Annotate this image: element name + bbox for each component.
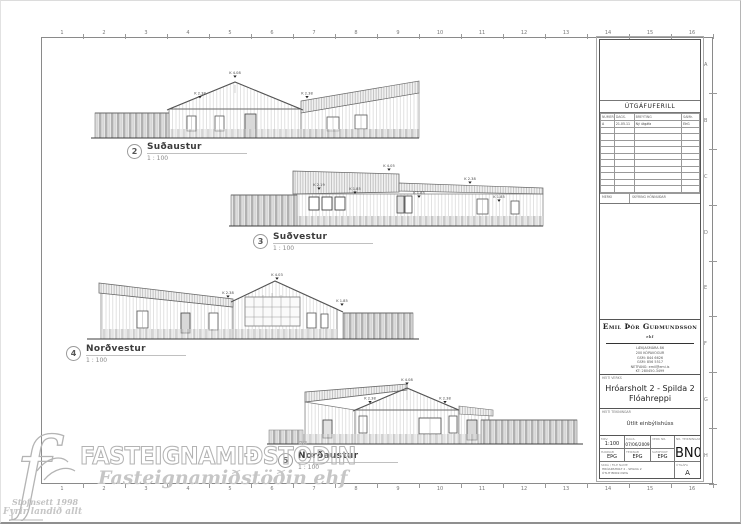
elevation-4-label: 4 Norðvestur 1 : 100 <box>66 344 186 364</box>
revision-footer-right: SKÝRING HÖNNUÐAR <box>630 194 668 203</box>
ruler-mark: 11 <box>461 30 503 36</box>
ruler-mark: 7 <box>293 30 335 36</box>
label-underline <box>273 243 373 244</box>
approved-value: EÞG <box>651 454 674 460</box>
level-marker: K 1.85 <box>336 299 348 303</box>
drawn-value: EÞG <box>625 454 650 460</box>
scale-value: 1:100 <box>600 441 624 447</box>
ruler-mark: 7 <box>293 486 335 492</box>
elevation-scale: 1 : 100 <box>298 464 398 471</box>
elevation-scale: 1 : 100 <box>86 357 186 364</box>
elevation-name: Norðvestur <box>86 344 186 354</box>
ruler-mark: 12 <box>503 486 545 492</box>
level-marker: K 1.85 <box>349 187 361 191</box>
elevation-number-badge: 2 <box>127 144 142 159</box>
ruler-mark: 9 <box>377 486 419 492</box>
drawn-cell: TEIKNAÐEÞG <box>625 449 651 462</box>
level-marker: K 2.38 <box>222 291 234 295</box>
elevation-number-badge: 5 <box>278 453 293 468</box>
ruler-mark: 2 <box>83 30 125 36</box>
ruler-mark: 5 <box>209 486 251 492</box>
revision-header-cell: BREYTING <box>634 114 682 121</box>
project-section: HEITI VERKS Hróarsholt 2 - Spilda 2 Flóa… <box>600 374 700 408</box>
revision-table-body: A21.05.11Ný útgáfaEÞG <box>601 121 700 193</box>
approved-cell: SAMÞYKKTEÞG <box>651 449 675 462</box>
level-marker: K 4.03 <box>271 273 283 277</box>
revision-row <box>601 186 700 193</box>
drawing-sheet: 12345678910111213141516 1234567891011121… <box>0 0 741 524</box>
level-marker: K 2.38 <box>301 92 313 96</box>
title-block-top-space <box>600 40 700 101</box>
ruler-mark: A <box>702 37 713 93</box>
ruler-mark: B <box>702 93 713 149</box>
ruler-mark: D <box>702 205 713 261</box>
revision-table: NÚMERDAGS.BREYTINGSAMÞ. A21.05.11Ný útgá… <box>600 113 700 193</box>
level-marker: K 2.38 <box>194 92 206 96</box>
elevation-name: Suðaustur <box>147 142 247 152</box>
file-name-value: HRÓARSHOLT 2 - SPILDA 2ÚTLIT BN02.DWG <box>602 467 642 475</box>
ruler-mark: F <box>702 316 713 372</box>
ruler-mark: 9 <box>377 30 419 36</box>
ruler-mark: 12 <box>503 30 545 36</box>
ruler-mark: 8 <box>335 30 377 36</box>
ruler-mark: E <box>702 261 713 317</box>
company-address: LÆKJASMÁRA 86200 KÓPAVOGURGSM: 844 6626G… <box>600 346 700 374</box>
ruler-mark: 1 <box>41 30 83 36</box>
elevation-3-drawing: K 4.05 K 2.19 K 1.85 K 2.38 K 1.85 K 1.8… <box>227 161 545 233</box>
drawing-number-cell: NR. TEIKNINGARBN02 <box>675 436 700 462</box>
ruler-mark: 13 <box>545 486 587 492</box>
ruler-mark: 6 <box>251 486 293 492</box>
file-name-cell: SKRÁ / FILE NAME HRÓARSHOLT 2 - SPILDA 2… <box>600 462 675 478</box>
ruler-mark: 6 <box>251 30 293 36</box>
project-title: Hróarsholt 2 - Spilda 2 Flóahreppi <box>600 381 700 408</box>
title-block: ÚTGÁFUFERILL NÚMERDAGS.BREYTINGSAMÞ. A21… <box>599 39 701 479</box>
ruler-mark: 11 <box>461 486 503 492</box>
date-cell: DAGS.07/06/2009 <box>625 436 651 449</box>
elevation-name: Suðvestur <box>273 232 373 242</box>
elevation-number-badge: 3 <box>253 234 268 249</box>
ruler-bottom: 12345678910111213141516 <box>41 486 713 492</box>
designed-value: EÞG <box>600 454 624 460</box>
ruler-mark: 4 <box>167 486 209 492</box>
ruler-mark: 14 <box>587 486 629 492</box>
elevation-number-badge: 4 <box>66 346 81 361</box>
elevation-4-drawing: K 4.03 K 2.38 K 1.85 <box>85 271 421 351</box>
watermark-tagline: Fyrir landið allt <box>3 507 82 517</box>
revision-header-cell: DAGS. <box>614 114 634 121</box>
revision-footer-left: MERKI <box>600 194 630 203</box>
ruler-mark: 13 <box>545 30 587 36</box>
revision-header-cell: NÚMER <box>601 114 615 121</box>
ruler-mark: 8 <box>335 486 377 492</box>
level-marker: K 2.38 <box>464 177 476 181</box>
elevation-3-label: 3 Suðvestur 1 : 100 <box>253 232 373 252</box>
ruler-mark: 3 <box>125 30 167 36</box>
ruler-top: 12345678910111213141516 <box>41 30 713 36</box>
level-marker: K 2.38 <box>439 397 451 401</box>
level-marker: K 2.19 <box>313 183 325 187</box>
ruler-mark: C <box>702 149 713 205</box>
elevation-5-label: 5 Norðaustur 1 : 100 <box>278 451 398 471</box>
ruler-right: ABCDEFGH <box>702 37 713 484</box>
label-underline <box>147 153 247 154</box>
ruler-mark: 10 <box>419 30 461 36</box>
elevation-scale: 1 : 100 <box>273 245 373 252</box>
ruler-mark: 10 <box>419 486 461 492</box>
notes-area <box>600 204 700 320</box>
ruler-mark: 2 <box>83 486 125 492</box>
logo-bracket <box>12 509 43 520</box>
scale-cell: MKV.1:100 <box>600 436 625 449</box>
glazing-grid <box>245 293 300 326</box>
ruler-mark: 16 <box>671 30 713 36</box>
company-rule <box>606 343 694 344</box>
elevation-name: Norðaustur <box>298 451 398 461</box>
drawing-title-section: HEITI TEIKNINGAR Útlit einbýlishúss <box>600 408 700 435</box>
ruler-mark: 14 <box>587 30 629 36</box>
elevation-2-drawing: K 4.08 K 2.38 K 2.38 <box>87 67 423 145</box>
label-underline <box>86 355 186 356</box>
elevation-2-label: 2 Suðaustur 1 : 100 <box>127 142 247 162</box>
drawing-number-value: BN02 <box>675 446 700 461</box>
drawing-title: Útlit einbýlishúss <box>600 415 700 435</box>
door <box>397 196 404 213</box>
ruler-mark: 15 <box>629 30 671 36</box>
level-marker: K 4.05 <box>383 164 395 168</box>
company-suffix: ehf <box>646 335 653 339</box>
revision-title: ÚTGÁFUFERILL <box>600 101 700 113</box>
info-grid: MKV.1:100 DAGS.07/06/2009 VERK NR. NR. T… <box>600 435 700 478</box>
level-marker: K 2.38 <box>364 397 376 401</box>
revision-table-head-row: NÚMERDAGS.BREYTINGSAMÞ. <box>601 114 700 121</box>
ruler-mark: 4 <box>167 30 209 36</box>
ruler-mark: 15 <box>629 486 671 492</box>
level-marker: K 4.08 <box>229 71 241 75</box>
job-number-cell: VERK NR. <box>651 436 675 449</box>
company-name: Emil Þór Guðmundsson ehf <box>600 322 700 342</box>
watermark-founded: Stofnsett 1998 <box>12 497 78 507</box>
level-marker: K 1.85 <box>413 191 425 195</box>
ruler-mark: 1 <box>41 486 83 492</box>
level-marker: K 4.08 <box>401 378 413 382</box>
list-line: ÚTLIT BN02.DWG <box>602 471 642 475</box>
revision-header-cell: SAMÞ. <box>682 114 700 121</box>
ruler-mark: 5 <box>209 30 251 36</box>
issue-cell: ÚTGÁFAA <box>675 462 700 478</box>
level-marker: K 1.85 <box>493 195 505 199</box>
elevation-5-drawing: K 4.08 K 2.38 K 2.38 <box>267 374 585 454</box>
issue-value: A <box>675 469 700 477</box>
revision-footer: MERKI SKÝRING HÖNNUÐAR <box>600 193 700 204</box>
label-underline <box>298 462 398 463</box>
designed-cell: HANNAÐEÞG <box>600 449 625 462</box>
ruler-mark: 16 <box>671 486 713 492</box>
date-value: 07/06/2009 <box>625 442 650 447</box>
ruler-mark: G <box>702 372 713 428</box>
ruler-mark: 3 <box>125 486 167 492</box>
company-block: Emil Þór Guðmundsson ehf LÆKJASMÁRA 8620… <box>600 319 700 374</box>
ruler-mark: H <box>702 428 713 484</box>
